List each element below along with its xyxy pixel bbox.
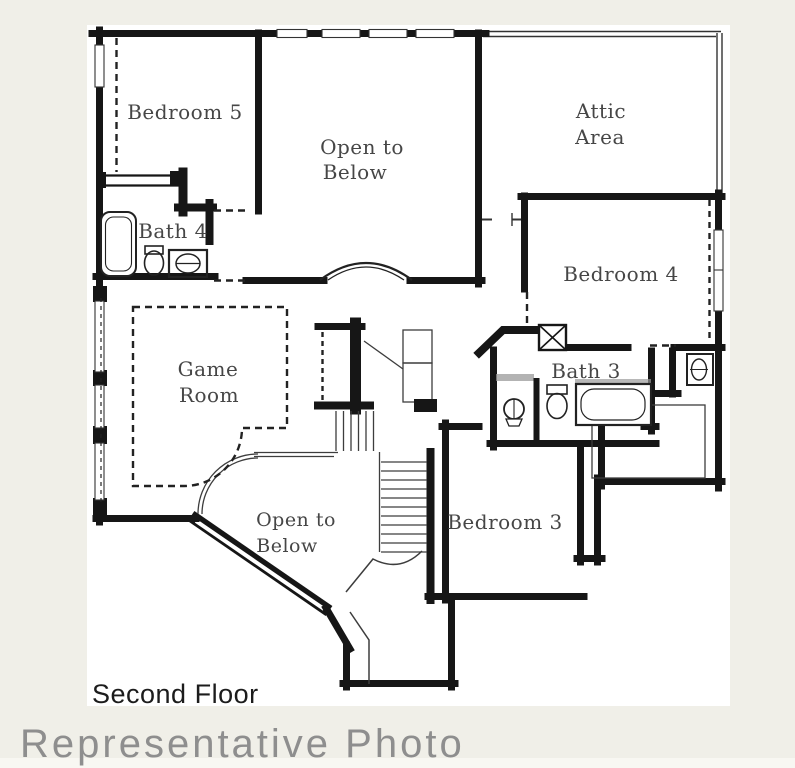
window-game-1 [95,301,104,372]
window-top-3 [369,30,407,38]
window-game-3 [95,443,104,500]
floor-plan-page: Bedroom 5 Open to Below Attic Area Bath … [0,0,795,768]
wall-chunk-3 [93,426,107,444]
window-top-2 [322,30,360,38]
label-bedroom5: Bedroom 5 [127,100,243,124]
label-bedroom3: Bedroom 3 [447,510,563,534]
label-game-room-2: Room [179,383,239,407]
wall-chunk-4 [93,498,107,518]
wall-chunk-1 [93,286,107,302]
label-open-below-lower-1: Open to [256,509,336,531]
stair-block [414,399,437,412]
bath3-tub [576,384,651,425]
floor-title: Second Floor [92,679,259,709]
window-bedroom5 [95,45,104,87]
label-bedroom4: Bedroom 4 [563,262,679,286]
label-game-room-1: Game [178,357,239,381]
window-top-1 [277,30,307,38]
chase-x-box [539,325,566,350]
label-attic-2: Area [574,125,625,149]
label-bath3: Bath 3 [551,359,621,383]
label-open-below-upper-1: Open to [320,135,404,159]
bath3-counter [496,374,534,381]
label-open-below-lower-2: Below [256,535,318,557]
label-bath4: Bath 4 [138,219,208,243]
floor-plan-drawing: Bedroom 5 Open to Below Attic Area Bath … [0,0,795,768]
window-top-4 [416,30,454,38]
label-attic-1: Attic [575,99,626,123]
window-game-2 [95,385,104,428]
label-open-below-upper-2: Below [323,160,388,184]
watermark-text: Representative Photo [20,722,465,766]
